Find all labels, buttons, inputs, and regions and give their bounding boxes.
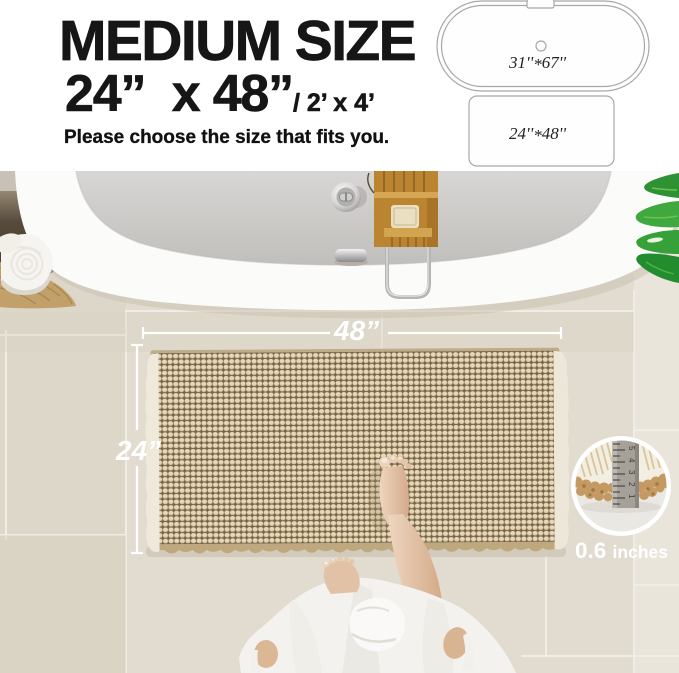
- svg-text:5: 5: [627, 446, 636, 451]
- svg-text:1: 1: [627, 494, 636, 499]
- svg-text:3: 3: [627, 470, 636, 475]
- svg-text:48”: 48”: [333, 315, 379, 346]
- svg-text:31''*67'': 31''*67'': [508, 53, 566, 74]
- svg-text:4: 4: [627, 458, 636, 463]
- svg-text:0.6 inches: 0.6 inches: [575, 538, 668, 563]
- svg-text:24”: 24”: [115, 435, 161, 466]
- svg-text:2: 2: [627, 482, 636, 487]
- svg-text:24''*48'': 24''*48'': [509, 124, 566, 145]
